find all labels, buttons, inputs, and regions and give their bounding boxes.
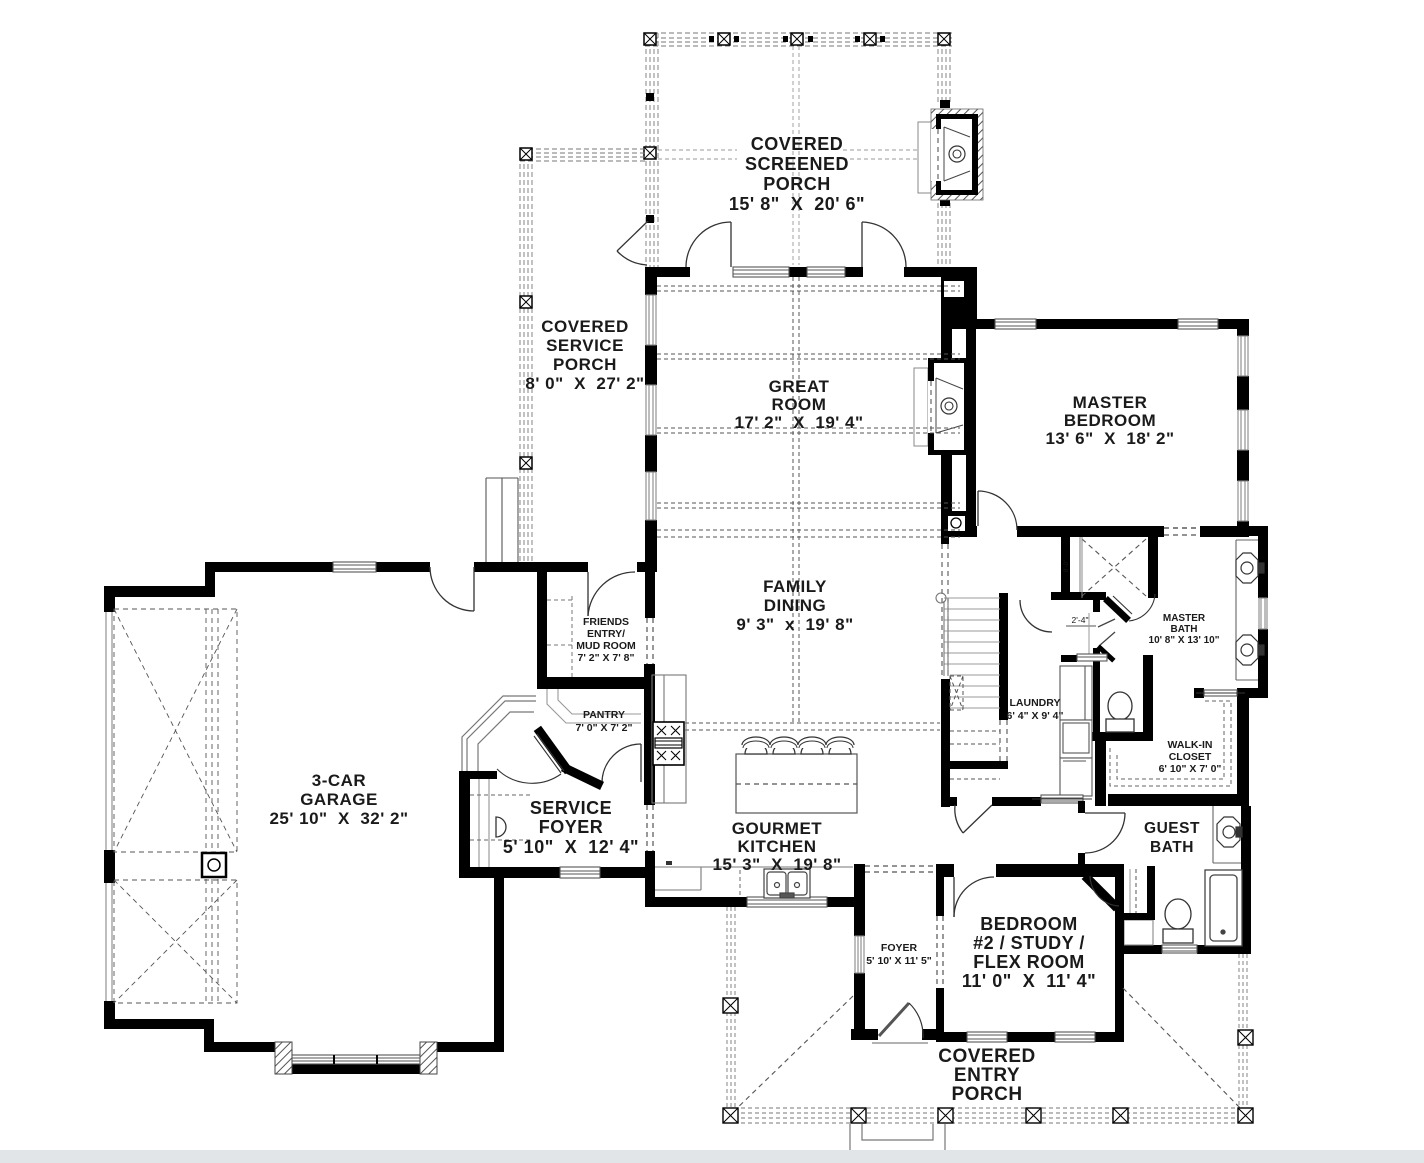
svg-text:GOURMET: GOURMET bbox=[732, 819, 823, 838]
svg-text:11' 0" X 11' 4": 11' 0" X 11' 4" bbox=[962, 971, 1096, 991]
svg-text:CLOSET: CLOSET bbox=[1169, 751, 1212, 763]
svg-text:25' 10" X 32' 2": 25' 10" X 32' 2" bbox=[269, 809, 408, 828]
svg-text:3-CAR: 3-CAR bbox=[312, 771, 366, 790]
svg-text:6' 10" X 7' 0": 6' 10" X 7' 0" bbox=[1159, 763, 1222, 775]
svg-text:PORCH: PORCH bbox=[951, 1084, 1022, 1105]
svg-text:FLEX ROOM: FLEX ROOM bbox=[973, 952, 1085, 972]
svg-text:13' 6" X 18' 2": 13' 6" X 18' 2" bbox=[1045, 429, 1174, 448]
svg-text:MASTER: MASTER bbox=[1073, 393, 1148, 412]
svg-text:BATH: BATH bbox=[1170, 624, 1197, 635]
svg-text:PORCH: PORCH bbox=[763, 174, 831, 194]
svg-text:8'-0": 8'-0" bbox=[1064, 560, 1070, 572]
svg-text:PORCH: PORCH bbox=[553, 355, 617, 374]
svg-text:WALK-IN: WALK-IN bbox=[1168, 739, 1213, 751]
svg-text:ENTRY: ENTRY bbox=[954, 1065, 1020, 1086]
svg-text:7' 2" X 7' 8": 7' 2" X 7' 8" bbox=[578, 652, 635, 664]
svg-text:COVERED: COVERED bbox=[751, 134, 844, 154]
svg-text:2'-4": 2'-4" bbox=[1072, 615, 1089, 625]
svg-text:FAMILY: FAMILY bbox=[763, 577, 827, 596]
svg-text:COVERED: COVERED bbox=[541, 317, 629, 336]
svg-text:#2 / STUDY /: #2 / STUDY / bbox=[973, 933, 1085, 953]
svg-text:GREAT: GREAT bbox=[769, 377, 830, 396]
svg-text:MUD ROOM: MUD ROOM bbox=[576, 640, 636, 652]
svg-text:COVERED: COVERED bbox=[938, 1046, 1035, 1067]
svg-text:PANTRY: PANTRY bbox=[583, 709, 625, 721]
svg-text:KITCHEN: KITCHEN bbox=[737, 837, 816, 856]
svg-text:6' 4" X 9' 4": 6' 4" X 9' 4" bbox=[1007, 710, 1064, 722]
svg-text:GARAGE: GARAGE bbox=[300, 790, 378, 809]
svg-text:10' 8" X 13' 10": 10' 8" X 13' 10" bbox=[1149, 635, 1220, 646]
svg-text:17' 2" X 19' 4": 17' 2" X 19' 4" bbox=[734, 413, 863, 432]
svg-text:FOYER: FOYER bbox=[881, 942, 918, 954]
svg-text:FRIENDS: FRIENDS bbox=[583, 616, 629, 628]
svg-text:BEDROOM: BEDROOM bbox=[980, 914, 1078, 934]
svg-text:SERVICE: SERVICE bbox=[546, 336, 624, 355]
svg-text:5' 10" X 12' 4": 5' 10" X 12' 4" bbox=[503, 837, 639, 857]
svg-text:FOYER: FOYER bbox=[539, 817, 604, 837]
svg-text:MASTER: MASTER bbox=[1163, 613, 1206, 624]
svg-text:5' 10' X 11' 5": 5' 10' X 11' 5" bbox=[866, 955, 932, 967]
svg-text:SERVICE: SERVICE bbox=[530, 798, 612, 818]
svg-text:9' 3" x 19' 8": 9' 3" x 19' 8" bbox=[736, 615, 853, 634]
svg-text:LAUNDRY: LAUNDRY bbox=[1010, 697, 1061, 709]
svg-text:GUEST: GUEST bbox=[1144, 820, 1200, 837]
svg-text:DINING: DINING bbox=[764, 596, 827, 615]
svg-text:7' 0" X 7' 2": 7' 0" X 7' 2" bbox=[576, 722, 633, 734]
svg-text:8' 0" X 27' 2": 8' 0" X 27' 2" bbox=[525, 374, 644, 393]
svg-text:ENTRY/: ENTRY/ bbox=[587, 628, 625, 640]
svg-text:BATH: BATH bbox=[1150, 839, 1194, 856]
svg-text:15' 3" X 19' 8": 15' 3" X 19' 8" bbox=[712, 855, 841, 874]
svg-text:ROOM: ROOM bbox=[772, 395, 827, 414]
svg-text:SCREENED: SCREENED bbox=[745, 154, 849, 174]
svg-text:BEDROOM: BEDROOM bbox=[1064, 411, 1156, 430]
svg-text:15' 8" X 20' 6": 15' 8" X 20' 6" bbox=[729, 194, 865, 214]
